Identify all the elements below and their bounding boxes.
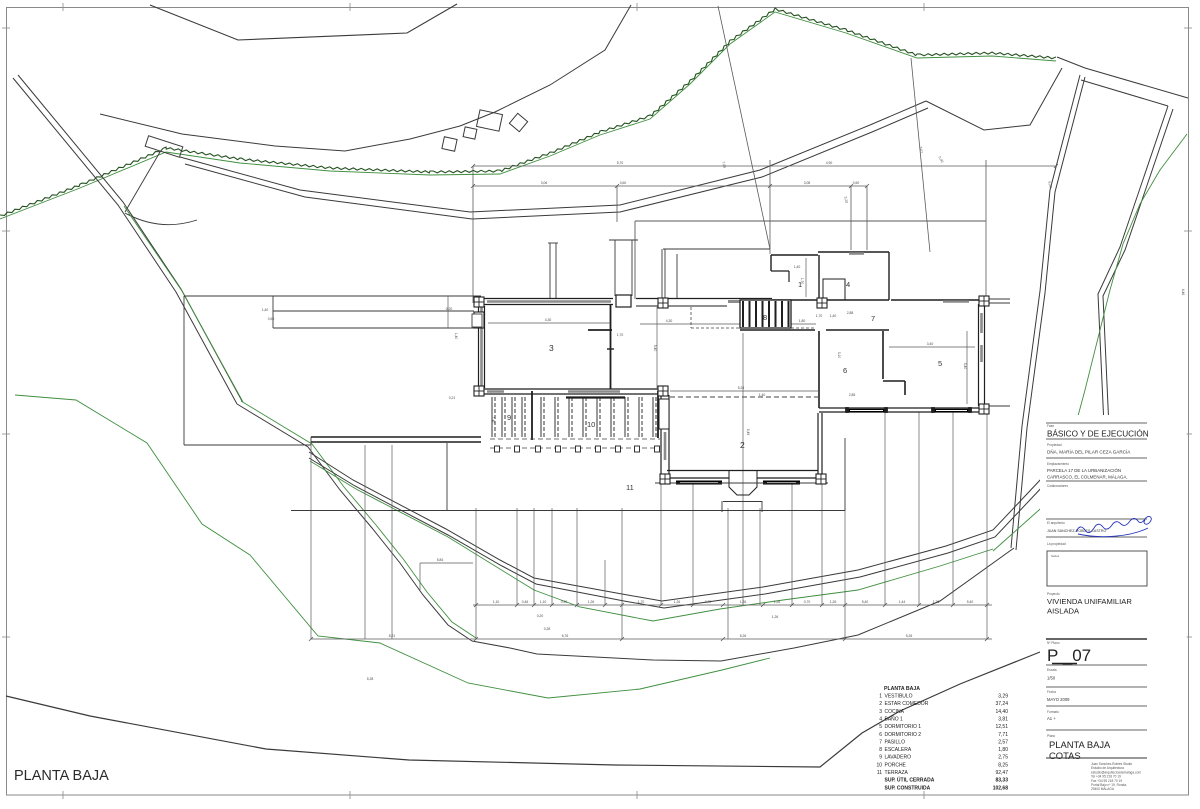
svg-text:PORCHE: PORCHE: [885, 762, 907, 768]
svg-text:37,24: 37,24: [995, 701, 1008, 707]
svg-text:0,60: 0,60: [268, 317, 275, 321]
svg-text:SUP. ÚTIL CERRADA: SUP. ÚTIL CERRADA: [885, 777, 935, 784]
svg-text:PLANTA BAJA: PLANTA BAJA: [1049, 739, 1111, 750]
svg-text:LAVADERO: LAVADERO: [885, 755, 912, 761]
svg-text:3,29: 3,29: [998, 694, 1008, 700]
svg-text:1,70: 1,70: [638, 600, 645, 604]
svg-text:CARRASCO, EL COLMENAR, MÁLAGA.: CARRASCO, EL COLMENAR, MÁLAGA.: [1047, 475, 1128, 480]
svg-text:102,68: 102,68: [993, 785, 1009, 791]
svg-text:1: 1: [879, 694, 882, 700]
svg-text:Fecha: Fecha: [1047, 690, 1056, 694]
svg-text:0,20: 0,20: [537, 614, 544, 618]
svg-text:El arquitecto: El arquitecto: [1047, 521, 1065, 525]
svg-text:ESCALERA: ESCALERA: [885, 747, 912, 753]
svg-text:Propiedad: Propiedad: [1047, 443, 1062, 447]
svg-text:1,26: 1,26: [740, 600, 747, 604]
svg-text:SUP. CONSTRUIDA: SUP. CONSTRUIDA: [885, 785, 931, 791]
svg-text:2,75: 2,75: [998, 755, 1008, 761]
svg-text:5,07: 5,07: [919, 146, 924, 153]
svg-text:5,40: 5,40: [653, 345, 657, 352]
svg-text:VIVIENDA UNIFAMILIAR: VIVIENDA UNIFAMILIAR: [1047, 597, 1132, 606]
svg-text:1,70: 1,70: [800, 278, 804, 285]
svg-text:DORMITORIO 2: DORMITORIO 2: [885, 732, 922, 738]
svg-text:PLANTA BAJA: PLANTA BAJA: [14, 768, 109, 784]
svg-text:1,40: 1,40: [794, 265, 801, 269]
svg-text:11: 11: [877, 770, 882, 776]
svg-text:2,85: 2,85: [849, 393, 856, 397]
svg-text:1,26: 1,26: [588, 600, 595, 604]
svg-text:8,21: 8,21: [389, 634, 396, 638]
svg-text:8: 8: [879, 747, 882, 753]
svg-text:4,30: 4,30: [545, 318, 552, 322]
svg-text:ESTAR COMEDOR: ESTAR COMEDOR: [885, 701, 929, 707]
svg-text:1/50: 1/50: [1047, 676, 1056, 681]
svg-text:1,44: 1,44: [899, 600, 906, 604]
svg-text:1,40: 1,40: [262, 308, 269, 312]
svg-text:3,40: 3,40: [963, 363, 967, 370]
svg-text:1,80: 1,80: [799, 319, 806, 323]
svg-text:1,26: 1,26: [933, 600, 940, 604]
svg-text:92,47: 92,47: [995, 770, 1008, 776]
svg-text:Colaboradores: Colaboradores: [1047, 484, 1068, 488]
svg-text:7,71: 7,71: [998, 732, 1008, 738]
svg-text:1,40: 1,40: [759, 393, 766, 397]
svg-text:Emplazamiento: Emplazamiento: [1047, 462, 1069, 466]
svg-text:5,70: 5,70: [617, 161, 624, 165]
svg-text:5: 5: [938, 359, 942, 368]
svg-text:8: 8: [763, 313, 767, 322]
svg-text:6: 6: [843, 366, 847, 375]
svg-text:3,10: 3,10: [837, 352, 841, 359]
svg-text:0,60: 0,60: [620, 181, 627, 185]
svg-text:3,81: 3,81: [998, 717, 1008, 723]
svg-text:1,10: 1,10: [540, 600, 547, 604]
svg-text:6,26: 6,26: [740, 634, 747, 638]
svg-text:5,26: 5,26: [906, 634, 913, 638]
svg-text:0,28: 0,28: [544, 627, 551, 631]
svg-text:4,90: 4,90: [826, 161, 833, 165]
svg-text:4,30: 4,30: [666, 319, 673, 323]
svg-text:Escala: Escala: [1047, 668, 1057, 672]
svg-text:0,90: 0,90: [561, 600, 568, 604]
svg-text:1,26: 1,26: [674, 600, 681, 604]
svg-text:0,60: 0,60: [853, 181, 860, 185]
svg-text:3,06: 3,06: [541, 181, 548, 185]
svg-text:3: 3: [879, 709, 882, 715]
svg-text:TERRAZA: TERRAZA: [885, 770, 909, 776]
svg-text:La propiedad: La propiedad: [1047, 542, 1066, 546]
svg-text:Formato: Formato: [1047, 710, 1059, 714]
svg-text:1,70: 1,70: [816, 314, 823, 318]
svg-text:VESTIBULO: VESTIBULO: [885, 694, 913, 700]
svg-text:1,40: 1,40: [454, 333, 458, 340]
svg-text:MAYO 2009: MAYO 2009: [1047, 697, 1070, 702]
svg-text:5,24: 5,24: [738, 386, 745, 390]
svg-text:2,57: 2,57: [998, 739, 1008, 745]
svg-text:Proyecto: Proyecto: [1047, 592, 1060, 596]
svg-text:4: 4: [879, 717, 882, 723]
svg-text:0,21: 0,21: [449, 396, 456, 400]
svg-text:5,40: 5,40: [862, 600, 869, 604]
svg-text:1,80: 1,80: [998, 747, 1008, 753]
svg-text:PASILLO: PASILLO: [885, 739, 906, 745]
svg-text:1,40: 1,40: [491, 417, 495, 424]
svg-text:0,70: 0,70: [804, 600, 811, 604]
svg-text:5,49: 5,49: [746, 429, 750, 436]
svg-text:1,26: 1,26: [830, 600, 837, 604]
svg-text:11: 11: [626, 483, 634, 492]
svg-text:2: 2: [740, 440, 745, 450]
svg-text:3,40: 3,40: [927, 342, 934, 346]
svg-text:83,33: 83,33: [995, 778, 1008, 784]
svg-text:9: 9: [879, 755, 882, 761]
svg-text:Sellos: Sellos: [1051, 554, 1060, 558]
svg-text:DORMITORIO 1: DORMITORIO 1: [885, 724, 922, 730]
svg-text:4,46: 4,46: [1181, 289, 1185, 296]
svg-text:29400 MALAGA: 29400 MALAGA: [1091, 787, 1115, 791]
svg-text:6: 6: [879, 732, 882, 738]
svg-text:14,40: 14,40: [995, 709, 1008, 715]
svg-text:7: 7: [871, 314, 875, 323]
svg-text:12,51: 12,51: [995, 724, 1008, 730]
svg-text:0,20: 0,20: [446, 307, 453, 311]
svg-text:P _07: P _07: [1047, 646, 1091, 665]
svg-text:COTAS: COTAS: [1049, 750, 1081, 761]
svg-text:DÑA. MARÍA DEL PILAR CEZA GARC: DÑA. MARÍA DEL PILAR CEZA GARCÍA: [1047, 449, 1131, 455]
svg-text:6,76: 6,76: [562, 634, 569, 638]
svg-text:5: 5: [879, 724, 882, 730]
svg-text:8,25: 8,25: [998, 762, 1008, 768]
svg-text:1,70: 1,70: [617, 333, 624, 337]
svg-text:1,10: 1,10: [493, 600, 500, 604]
svg-text:3: 3: [549, 343, 554, 353]
svg-text:5,28: 5,28: [367, 677, 374, 681]
svg-text:1,26: 1,26: [772, 615, 779, 619]
svg-text:AISLADA: AISLADA: [1047, 607, 1080, 616]
svg-text:4: 4: [846, 280, 850, 289]
svg-text:5,84: 5,84: [437, 558, 444, 562]
svg-text:A1 +: A1 +: [1047, 716, 1056, 721]
svg-text:0,70: 0,70: [705, 600, 712, 604]
svg-text:1,26: 1,26: [774, 600, 781, 604]
svg-text:2,88: 2,88: [847, 311, 854, 315]
svg-text:Nº Plano: Nº Plano: [1047, 641, 1060, 645]
svg-text:BÁSICO Y DE EJECUCIÓN: BÁSICO Y DE EJECUCIÓN: [1047, 429, 1149, 439]
svg-text:10: 10: [876, 762, 882, 768]
svg-text:3,08: 3,08: [804, 181, 811, 185]
svg-text:COCINA: COCINA: [885, 709, 905, 715]
svg-text:2: 2: [879, 701, 882, 707]
svg-text:Fase: Fase: [1047, 424, 1054, 428]
svg-text:9: 9: [507, 413, 511, 422]
svg-text:0,46: 0,46: [522, 600, 529, 604]
svg-text:5,40: 5,40: [967, 600, 974, 604]
svg-text:7: 7: [879, 739, 882, 745]
svg-text:1,40: 1,40: [830, 314, 837, 318]
svg-text:Plano: Plano: [1047, 734, 1055, 738]
svg-text:PARCELA 17 DE LA URBANIZACIÓN: PARCELA 17 DE LA URBANIZACIÓN: [1047, 468, 1121, 473]
svg-text:10: 10: [587, 420, 595, 429]
svg-text:PLANTA BAJA: PLANTA BAJA: [884, 686, 920, 692]
svg-text:BAÑO 1: BAÑO 1: [885, 716, 904, 723]
